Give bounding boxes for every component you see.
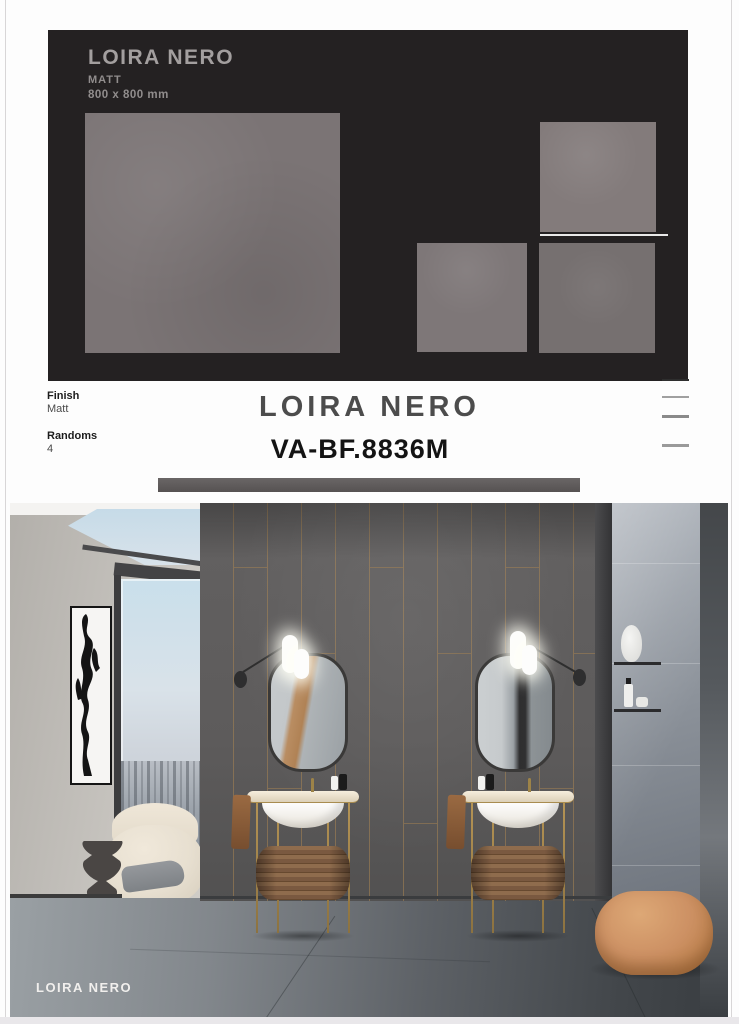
hanging-towel xyxy=(231,795,251,850)
soap-bottle-black xyxy=(486,774,494,790)
soap-bottle-black xyxy=(339,774,347,790)
lamp-bulb xyxy=(294,649,309,679)
tile-sample-top-right xyxy=(540,122,656,232)
board-product-title: LOIRA NERO xyxy=(88,46,234,70)
page-right-edge-line xyxy=(731,0,732,1024)
washbasin xyxy=(477,801,559,828)
alcove-tile-joint xyxy=(612,563,700,564)
left-wall-lamp xyxy=(282,635,312,679)
washbasin xyxy=(262,801,344,828)
lamp-bulb xyxy=(522,645,537,675)
wooden-drum-cabinet xyxy=(471,846,565,900)
pump-bottle xyxy=(624,684,633,707)
leather-pouf xyxy=(595,891,713,975)
page-left-edge-line xyxy=(5,0,6,1024)
vanity-counter xyxy=(247,791,359,803)
wooden-drum-cabinet xyxy=(256,846,350,900)
decor-vase xyxy=(621,625,642,662)
wall-joint xyxy=(404,823,437,824)
tile-separator-line xyxy=(540,234,668,236)
wall-corner-return xyxy=(595,503,612,901)
faucet xyxy=(528,778,531,792)
decor-jar xyxy=(636,697,648,707)
left-lamp-wall-mount xyxy=(234,671,247,688)
hanging-towel xyxy=(446,795,466,850)
bottom-margin xyxy=(0,1017,739,1024)
wall-joint xyxy=(438,653,471,654)
right-lamp-wall-mount xyxy=(573,669,586,686)
edge-mark-2 xyxy=(662,396,689,398)
niche-shelf-top xyxy=(614,662,661,665)
wall-joint xyxy=(234,567,267,568)
edge-mark-1 xyxy=(662,379,689,381)
tile-sample-bottom-right xyxy=(539,243,655,353)
board-finish-label: MATT xyxy=(88,74,122,86)
niche-shelf-bottom xyxy=(614,709,661,712)
vanity-counter xyxy=(462,791,574,803)
tile-sample-large xyxy=(85,113,340,353)
soap-bottle-white xyxy=(331,776,338,790)
catalog-page: LOIRA NERO MATT 800 x 800 mm Finish Matt… xyxy=(0,0,739,1024)
soap-bottle-white xyxy=(478,776,485,790)
product-name-title: LOIRA NERO xyxy=(0,391,739,424)
faucet xyxy=(311,778,314,792)
edge-mark-3 xyxy=(662,415,689,418)
artwork-strokes xyxy=(72,608,106,779)
wall-joint xyxy=(506,567,539,568)
product-code: VA-BF.8836M xyxy=(0,434,720,465)
tile-sample-bottom-middle xyxy=(417,243,527,352)
right-wall-lamp xyxy=(510,631,540,675)
abstract-artwork xyxy=(70,606,112,785)
bathroom-scene-photo: LOIRA NERO xyxy=(10,503,728,1017)
right-vanity xyxy=(462,788,574,938)
wall-joint xyxy=(370,567,403,568)
tile-board: LOIRA NERO MATT 800 x 800 mm xyxy=(48,30,688,381)
board-size-label: 800 x 800 mm xyxy=(88,89,169,101)
vanity-shadow xyxy=(251,930,355,942)
shower-alcove-wall xyxy=(612,503,700,933)
vanity-shadow xyxy=(466,930,570,942)
alcove-tile-joint xyxy=(612,765,700,766)
left-vanity xyxy=(247,788,359,938)
alcove-tile-joint xyxy=(612,865,700,866)
photo-caption: LOIRA NERO xyxy=(36,980,132,995)
tile-slab-edge xyxy=(158,478,580,492)
edge-mark-4 xyxy=(662,444,689,447)
